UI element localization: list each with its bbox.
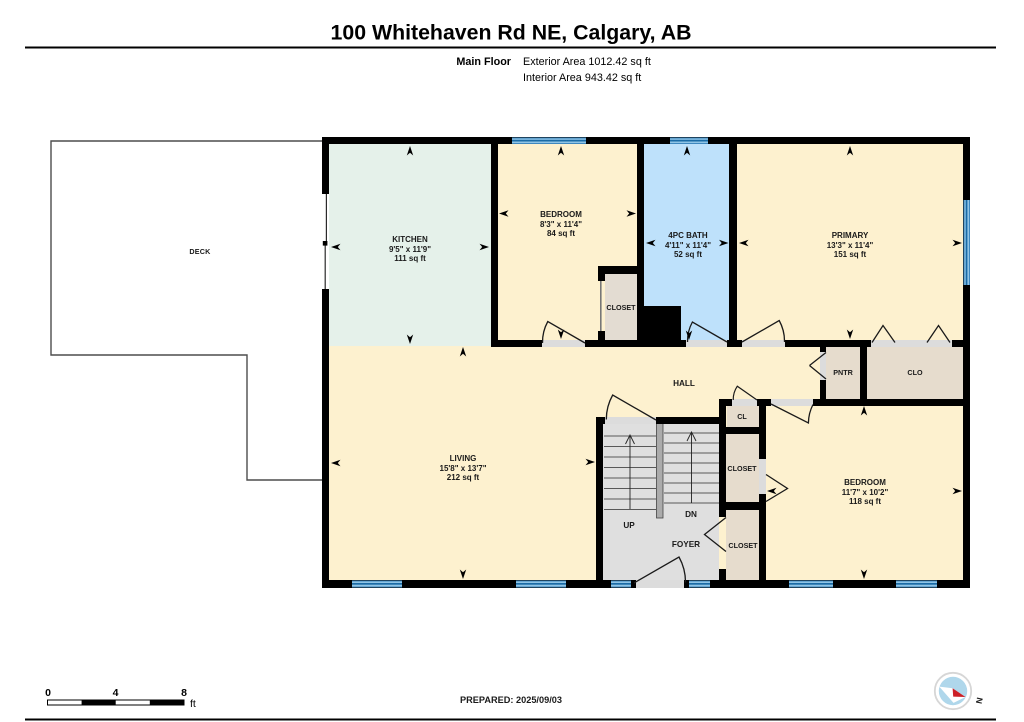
svg-text:4PC BATH: 4PC BATH — [668, 231, 708, 240]
svg-text:11'7" x 10'2": 11'7" x 10'2" — [842, 488, 889, 497]
svg-text:13'3" x 11'4": 13'3" x 11'4" — [827, 241, 874, 250]
svg-text:0: 0 — [45, 687, 51, 699]
svg-text:PREPARED: 2025/09/03: PREPARED: 2025/09/03 — [460, 695, 562, 705]
svg-text:118 sq ft: 118 sq ft — [849, 497, 881, 506]
svg-text:4'11" x 11'4": 4'11" x 11'4" — [665, 241, 711, 250]
svg-text:Interior Area 943.42 sq ft: Interior Area 943.42 sq ft — [523, 72, 641, 84]
svg-text:PRIMARY: PRIMARY — [832, 231, 869, 240]
svg-text:FOYER: FOYER — [672, 540, 700, 549]
svg-text:HALL: HALL — [673, 379, 695, 388]
svg-text:CLO: CLO — [907, 368, 923, 377]
svg-text:100 Whitehaven Rd NE, Calgary,: 100 Whitehaven Rd NE, Calgary, AB — [331, 20, 692, 44]
svg-text:4: 4 — [113, 687, 119, 699]
svg-text:CLOSET: CLOSET — [727, 464, 757, 473]
svg-text:LIVING: LIVING — [450, 454, 477, 463]
svg-text:Exterior Area 1012.42 sq ft: Exterior Area 1012.42 sq ft — [523, 56, 651, 68]
svg-text:15'8" x 13'7": 15'8" x 13'7" — [440, 464, 487, 473]
svg-text:52 sq ft: 52 sq ft — [674, 250, 702, 259]
svg-text:CLOSET: CLOSET — [606, 303, 636, 312]
svg-text:Main Floor: Main Floor — [456, 56, 511, 68]
svg-text:DN: DN — [685, 510, 697, 519]
svg-text:111 sq ft: 111 sq ft — [394, 254, 426, 263]
svg-text:212 sq ft: 212 sq ft — [447, 473, 480, 482]
svg-text:KITCHEN: KITCHEN — [392, 235, 428, 244]
svg-text:BEDROOM: BEDROOM — [844, 478, 886, 487]
svg-text:8: 8 — [181, 687, 187, 699]
svg-text:151 sq ft: 151 sq ft — [834, 250, 867, 259]
svg-text:CLOSET: CLOSET — [728, 541, 758, 550]
svg-text:UP: UP — [623, 521, 635, 530]
svg-text:84 sq ft: 84 sq ft — [547, 229, 575, 238]
svg-text:PNTR: PNTR — [833, 368, 853, 377]
svg-text:CL: CL — [737, 412, 747, 421]
svg-text:ft: ft — [190, 698, 196, 710]
svg-text:DECK: DECK — [189, 247, 211, 256]
svg-text:BEDROOM: BEDROOM — [540, 210, 582, 219]
svg-text:9'5" x 11'9": 9'5" x 11'9" — [389, 245, 431, 254]
svg-text:8'3" x 11'4": 8'3" x 11'4" — [540, 220, 582, 229]
